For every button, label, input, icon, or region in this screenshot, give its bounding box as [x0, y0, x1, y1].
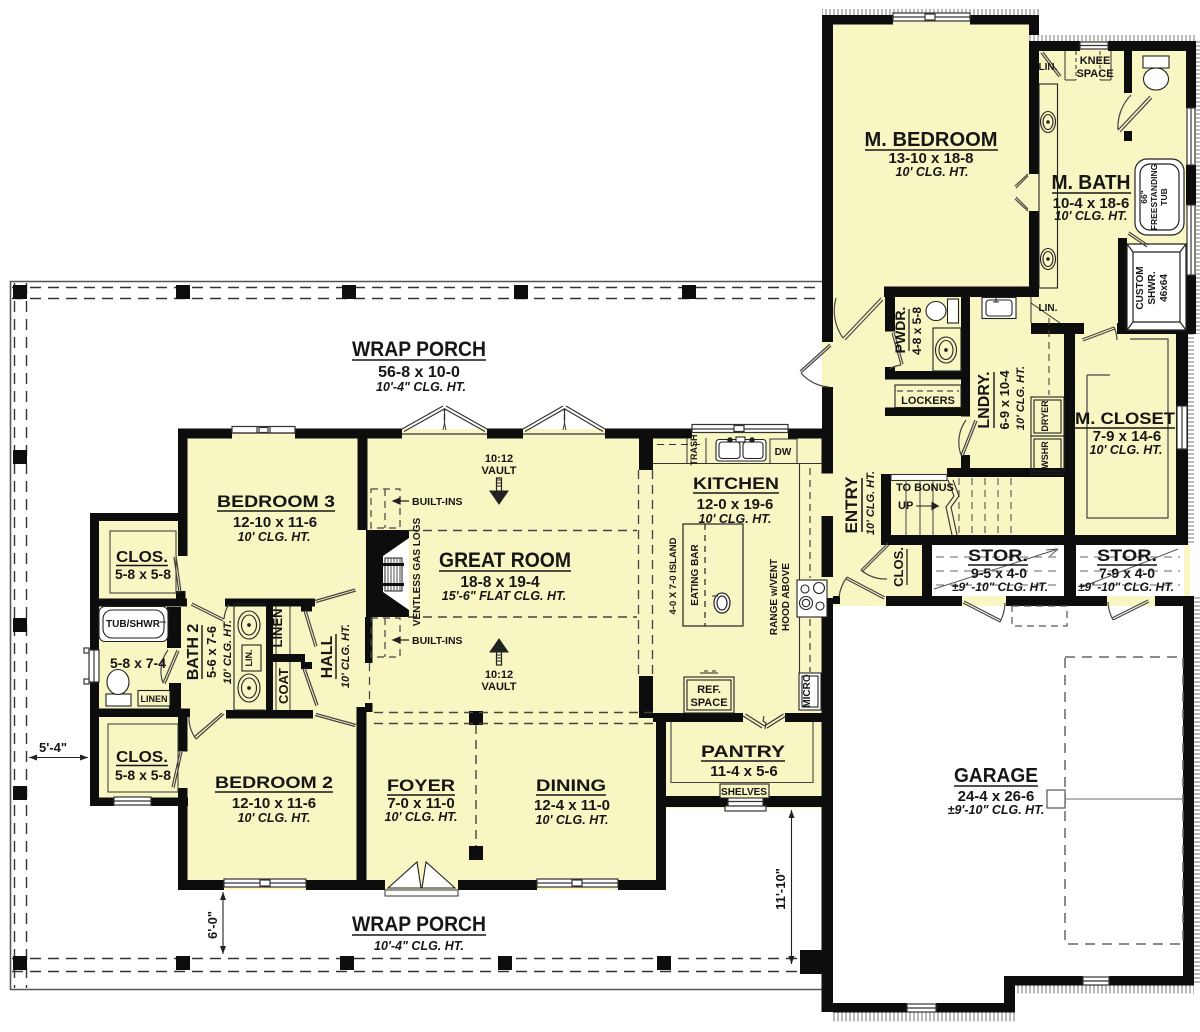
- svg-text:CLOS.: CLOS.: [116, 549, 168, 566]
- svg-text:KNEE: KNEE: [1080, 55, 1111, 67]
- svg-text:10' CLG. HT.: 10' CLG. HT.: [238, 530, 311, 544]
- svg-text:MICRO: MICRO: [802, 674, 813, 708]
- svg-text:CLOS.: CLOS.: [116, 749, 168, 766]
- svg-text:10' CLG. HT.: 10' CLG. HT.: [1015, 366, 1027, 430]
- svg-text:VENTLESS GAS LOGS: VENTLESS GAS LOGS: [412, 518, 423, 627]
- svg-text:M. CLOSET: M. CLOSET: [1075, 409, 1176, 428]
- svg-text:5'-4": 5'-4": [39, 740, 67, 755]
- svg-text:10' CLG. HT.: 10' CLG. HT.: [1090, 443, 1163, 457]
- svg-text:9-5 x 4-0: 9-5 x 4-0: [971, 565, 1027, 581]
- svg-text:WRAP PORCH: WRAP PORCH: [352, 913, 486, 936]
- svg-text:GARAGE: GARAGE: [954, 765, 1038, 787]
- svg-text:4-8 x 5-8: 4-8 x 5-8: [910, 307, 924, 355]
- svg-text:DW: DW: [775, 447, 792, 458]
- svg-text:10' CLG. HT.: 10' CLG. HT.: [896, 165, 969, 179]
- svg-text:VAULT: VAULT: [481, 465, 516, 477]
- svg-text:10' CLG. HT.: 10' CLG. HT.: [222, 620, 234, 684]
- svg-text:CLOS.: CLOS.: [891, 547, 906, 587]
- svg-text:RANGE w/VENT: RANGE w/VENT: [769, 559, 780, 635]
- svg-text:±9' -10" CLG. HT.: ±9' -10" CLG. HT.: [952, 580, 1048, 594]
- svg-text:LOCKERS: LOCKERS: [901, 395, 955, 407]
- svg-text:LIN.: LIN.: [244, 650, 254, 667]
- svg-text:±9' -10" CLG. HT.: ±9' -10" CLG. HT.: [1078, 580, 1174, 594]
- svg-text:FOYER: FOYER: [387, 776, 455, 795]
- svg-text:CUSTOM: CUSTOM: [1135, 266, 1146, 309]
- svg-text:10' CLG. HT.: 10' CLG. HT.: [865, 471, 877, 535]
- svg-text:SPACE: SPACE: [1076, 68, 1113, 80]
- svg-text:12-4 x 11-0: 12-4 x 11-0: [534, 797, 610, 814]
- svg-text:10'-4" CLG. HT.: 10'-4" CLG. HT.: [376, 380, 466, 394]
- svg-text:10' CLG. HT.: 10' CLG. HT.: [1055, 209, 1128, 223]
- svg-text:TUB: TUB: [1159, 188, 1169, 205]
- svg-text:5-6 x 7-6: 5-6 x 7-6: [204, 626, 219, 678]
- svg-text:M. BEDROOM: M. BEDROOM: [865, 129, 998, 151]
- svg-text:LINEN: LINEN: [141, 694, 168, 704]
- svg-text:STOR.: STOR.: [1097, 546, 1157, 565]
- svg-text:66": 66": [1139, 190, 1149, 204]
- svg-text:HOOD ABOVE: HOOD ABOVE: [781, 563, 792, 631]
- svg-text:15'-6" FLAT CLG. HT.: 15'-6" FLAT CLG. HT.: [442, 589, 566, 603]
- svg-text:12-0 x 19-6: 12-0 x 19-6: [697, 496, 774, 513]
- svg-text:±9'-10" CLG. HT.: ±9'-10" CLG. HT.: [948, 803, 1045, 817]
- svg-text:11'-10": 11'-10": [773, 868, 788, 910]
- svg-text:BUILT-INS: BUILT-INS: [412, 635, 463, 647]
- svg-text:5-8 x 7-4: 5-8 x 7-4: [110, 655, 166, 671]
- svg-text:BATH 2: BATH 2: [185, 624, 202, 681]
- svg-text:WRAP PORCH: WRAP PORCH: [352, 338, 486, 361]
- svg-text:SPACE: SPACE: [690, 697, 727, 709]
- svg-text:12-10 x 11-6: 12-10 x 11-6: [232, 795, 316, 812]
- svg-text:12-10 x 11-6: 12-10 x 11-6: [233, 514, 317, 531]
- svg-text:PWDR.: PWDR.: [892, 307, 908, 354]
- svg-text:10' CLG. HT.: 10' CLG. HT.: [340, 624, 352, 688]
- svg-text:6-9 x 10-4: 6-9 x 10-4: [997, 370, 1012, 430]
- svg-text:LINEN: LINEN: [270, 609, 285, 648]
- svg-text:DRYER: DRYER: [1040, 400, 1050, 432]
- svg-text:TO BONUS: TO BONUS: [896, 482, 954, 494]
- svg-text:5-8 x 5-8: 5-8 x 5-8: [115, 767, 171, 783]
- svg-text:DINING: DINING: [536, 776, 606, 795]
- svg-text:BUILT-INS: BUILT-INS: [412, 496, 463, 508]
- svg-text:10' CLG. HT.: 10' CLG. HT.: [238, 811, 311, 825]
- svg-text:STOR.: STOR.: [968, 546, 1028, 565]
- svg-text:TRASH: TRASH: [689, 435, 699, 466]
- svg-text:6'-0": 6'-0": [205, 911, 220, 939]
- svg-text:EATING BAR: EATING BAR: [690, 543, 701, 605]
- svg-text:VAULT: VAULT: [481, 681, 516, 693]
- svg-text:BEDROOM 3: BEDROOM 3: [217, 492, 335, 511]
- svg-text:LIN.: LIN.: [1039, 62, 1058, 73]
- svg-text:4-0 X 7-0 ISLAND: 4-0 X 7-0 ISLAND: [668, 537, 679, 614]
- svg-text:10:12: 10:12: [485, 669, 513, 681]
- svg-text:10' CLG. HT.: 10' CLG. HT.: [699, 512, 772, 526]
- svg-text:M. BATH: M. BATH: [1052, 172, 1131, 194]
- svg-text:7-9 x 4-0: 7-9 x 4-0: [1099, 565, 1155, 581]
- svg-text:GREAT ROOM: GREAT ROOM: [439, 549, 571, 572]
- svg-text:COAT: COAT: [276, 668, 291, 704]
- svg-text:ENTRY: ENTRY: [842, 476, 861, 534]
- svg-text:WSHR: WSHR: [1040, 441, 1050, 469]
- svg-text:SHELVES: SHELVES: [721, 787, 767, 798]
- svg-text:KITCHEN: KITCHEN: [693, 474, 779, 493]
- svg-text:46x64: 46x64: [1159, 274, 1170, 302]
- svg-text:SHWR.: SHWR.: [1147, 271, 1158, 305]
- svg-text:TUB/SHWR: TUB/SHWR: [106, 619, 161, 630]
- svg-text:56-8 x 10-0: 56-8 x 10-0: [378, 364, 460, 381]
- svg-text:LIN.: LIN.: [1039, 303, 1058, 314]
- svg-text:11-4 x 5-6: 11-4 x 5-6: [710, 763, 778, 780]
- svg-text:REF.: REF.: [697, 684, 721, 696]
- svg-text:BEDROOM 2: BEDROOM 2: [215, 773, 333, 792]
- svg-text:10' CLG. HT.: 10' CLG. HT.: [385, 810, 458, 824]
- svg-text:10:12: 10:12: [485, 453, 513, 465]
- svg-text:10'-4" CLG. HT.: 10'-4" CLG. HT.: [374, 939, 464, 953]
- svg-text:10' CLG. HT.: 10' CLG. HT.: [536, 813, 609, 827]
- svg-text:FREESTANDING: FREESTANDING: [1149, 163, 1159, 230]
- svg-text:5-8 x 5-8: 5-8 x 5-8: [115, 566, 171, 582]
- svg-text:HALL: HALL: [319, 635, 336, 678]
- svg-text:PANTRY: PANTRY: [701, 742, 786, 761]
- svg-text:LNDRY.: LNDRY.: [976, 371, 993, 428]
- svg-text:UP: UP: [898, 500, 913, 512]
